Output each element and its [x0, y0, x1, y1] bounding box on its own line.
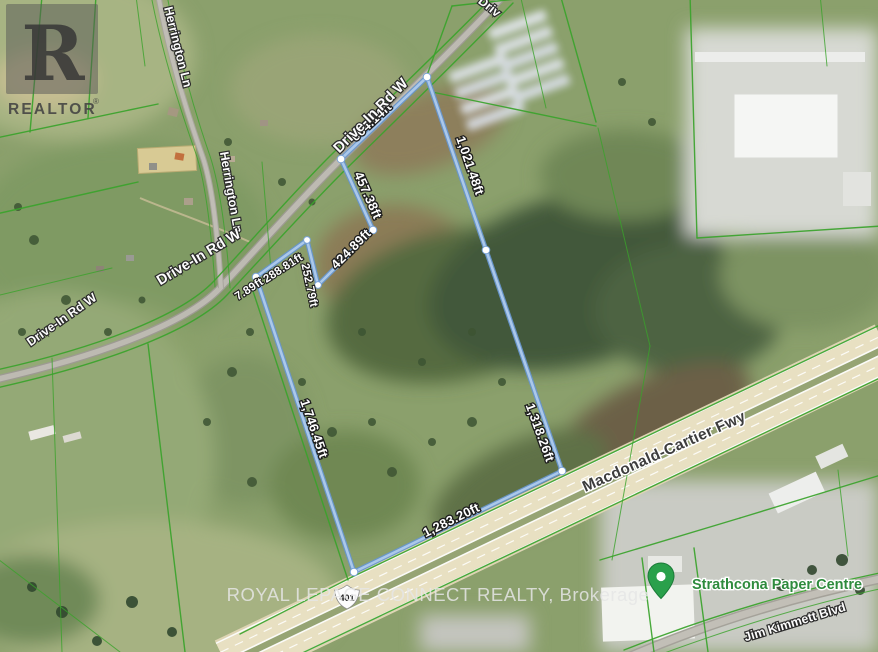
- poi-label: Strathcona Paper Centre: [692, 577, 862, 593]
- registered-trademark: ®: [93, 97, 99, 106]
- satellite-map[interactable]: 664.14ft 1,021.48ft 1,318.26ft 1,283.20f…: [0, 0, 878, 652]
- realtor-logo-text: REALTOR: [8, 101, 97, 118]
- sand-field: [137, 145, 196, 173]
- map-canvas[interactable]: 664.14ft 1,021.48ft 1,318.26ft 1,283.20f…: [0, 0, 878, 652]
- realtor-logo-letter: R: [21, 9, 85, 98]
- realtor-logo: R REALTOR ®: [6, 4, 99, 118]
- brokerage-watermark: ROYAL LEPAGE CONNECT REALTY, Brokerage: [227, 584, 650, 605]
